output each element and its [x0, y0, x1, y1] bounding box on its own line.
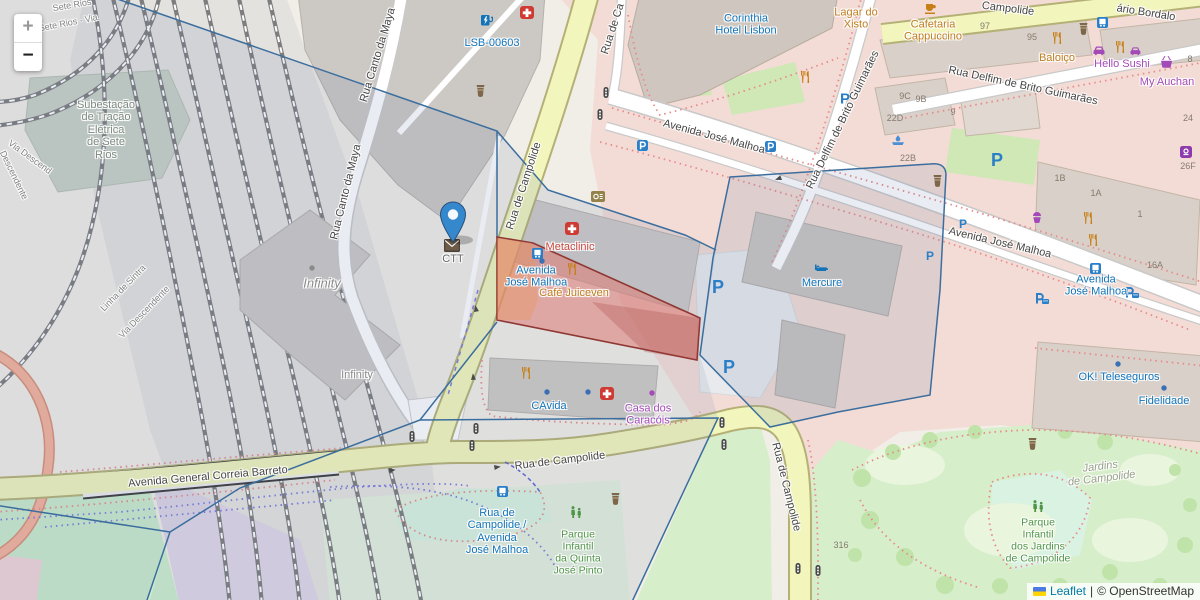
clinic-icon: [520, 6, 534, 19]
traffic-signal-icon: [474, 423, 479, 434]
clinic-icon: [600, 387, 614, 400]
parking-icon: [765, 141, 776, 152]
clinic-icon: [565, 222, 579, 235]
traffic-signal-icon: [598, 109, 603, 120]
poi-dot: [539, 258, 544, 263]
traffic-signal-icon: [410, 431, 415, 442]
poi-dot: [1115, 361, 1120, 366]
poi-dot: [585, 389, 590, 394]
parking-icon: [637, 140, 648, 151]
traffic-signal-icon: [796, 563, 801, 574]
bus-stop-icon: [1097, 17, 1108, 28]
poi-dot: [1161, 385, 1166, 390]
zoom-out-button[interactable]: −: [14, 43, 42, 71]
traffic-signal-icon: [722, 439, 727, 450]
openstreetmap-link[interactable]: © OpenStreetMap: [1097, 584, 1194, 598]
ukraine-flag-icon: [1033, 587, 1046, 596]
traffic-signal-icon: [720, 417, 725, 428]
map-tiles: [0, 0, 1200, 600]
map-canvas[interactable]: Rua Canto da Maya Rua Canto da Maya Rua …: [0, 0, 1200, 600]
poi-dot: [649, 390, 654, 395]
zoom-control: + −: [14, 14, 42, 71]
poi-dot: [544, 389, 549, 394]
shop-icon: [1180, 146, 1192, 158]
bus-stop-icon: [1090, 263, 1101, 274]
attribution-bar: Leaflet | © OpenStreetMap: [1027, 583, 1200, 600]
leaflet-link[interactable]: Leaflet: [1050, 584, 1086, 598]
bus-stop-icon: [497, 486, 508, 497]
bus-stop-icon: [532, 248, 543, 259]
zoom-in-button[interactable]: +: [14, 14, 42, 43]
poi-dot: [309, 265, 314, 270]
attribution-separator: |: [1090, 584, 1093, 598]
traffic-signal-icon: [604, 87, 609, 98]
traffic-signal-icon: [816, 565, 821, 576]
traffic-signal-icon: [470, 440, 475, 451]
bureau-de-change-icon: [591, 191, 605, 202]
